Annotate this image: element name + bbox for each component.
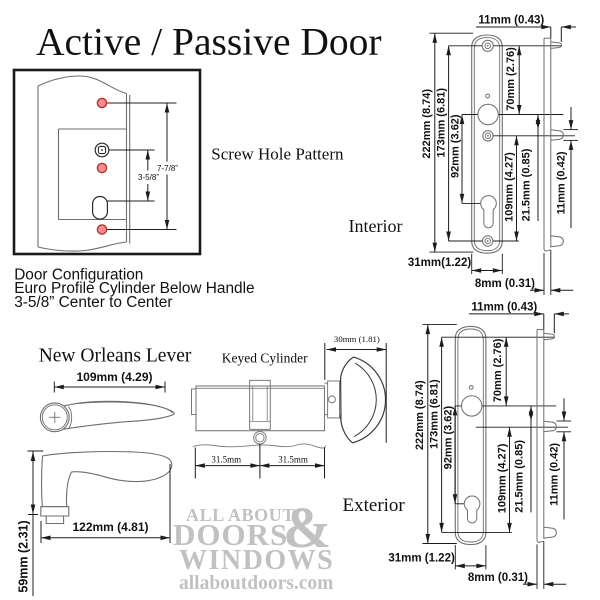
svg-text:Screw Hole Pattern: Screw Hole Pattern <box>211 145 344 164</box>
svg-text:30mm (1.81): 30mm (1.81) <box>334 334 380 344</box>
svg-text:222mm (8.74): 222mm (8.74) <box>421 89 433 159</box>
svg-text:Interior: Interior <box>349 216 403 236</box>
svg-text:222mm (8.74): 222mm (8.74) <box>414 380 426 450</box>
svg-text:11mm (0.43): 11mm (0.43) <box>478 15 544 27</box>
svg-text:70mm (2.76): 70mm (2.76) <box>505 47 517 111</box>
svg-text:31mm (1.22): 31mm (1.22) <box>388 552 455 564</box>
svg-text:New Orleans Lever: New Orleans Lever <box>39 346 192 367</box>
svg-text:Active / Passive Door: Active / Passive Door <box>36 20 382 64</box>
svg-text:3-5/8” Center to Center: 3-5/8” Center to Center <box>14 294 172 311</box>
svg-text:31mm(1.22): 31mm(1.22) <box>408 257 471 269</box>
svg-text:59mm (2.31): 59mm (2.31) <box>17 520 31 592</box>
svg-text:92mm (3.62): 92mm (3.62) <box>442 405 454 469</box>
svg-text:109mm (4.27): 109mm (4.27) <box>503 152 515 222</box>
svg-text:109mm (4.27): 109mm (4.27) <box>496 443 508 513</box>
svg-text:WINDOWS: WINDOWS <box>179 545 334 576</box>
svg-text:21.5mm (0.85): 21.5mm (0.85) <box>521 148 533 221</box>
svg-text:8mm (0.31): 8mm (0.31) <box>468 572 528 584</box>
svg-text:173mm (6.81): 173mm (6.81) <box>435 88 447 158</box>
svg-text:Keyed Cylinder: Keyed Cylinder <box>222 351 308 366</box>
svg-text:3-5/8”: 3-5/8” <box>138 173 159 182</box>
svg-text:8mm (0.31): 8mm (0.31) <box>475 278 535 290</box>
svg-text:7-7/8”: 7-7/8” <box>157 164 178 173</box>
svg-text:21.5mm (0.85): 21.5mm (0.85) <box>514 440 526 513</box>
svg-text:109mm (4.29): 109mm (4.29) <box>76 370 152 384</box>
svg-text:31.5mm: 31.5mm <box>278 455 308 465</box>
svg-text:173mm (6.81): 173mm (6.81) <box>428 379 440 449</box>
svg-text:11mm (0.43): 11mm (0.43) <box>471 301 537 313</box>
svg-text:92mm (3.62): 92mm (3.62) <box>449 114 461 178</box>
svg-text:11mm (0.42): 11mm (0.42) <box>555 151 567 214</box>
svg-text:122mm (4.81): 122mm (4.81) <box>72 520 148 534</box>
svg-text:11mm (0.42): 11mm (0.42) <box>548 443 560 506</box>
svg-text:70mm (2.76): 70mm (2.76) <box>492 338 504 402</box>
svg-text:allaboutdoors.com: allaboutdoors.com <box>179 573 333 594</box>
svg-text:31.5mm: 31.5mm <box>211 455 241 465</box>
svg-text:Exterior: Exterior <box>343 495 406 516</box>
